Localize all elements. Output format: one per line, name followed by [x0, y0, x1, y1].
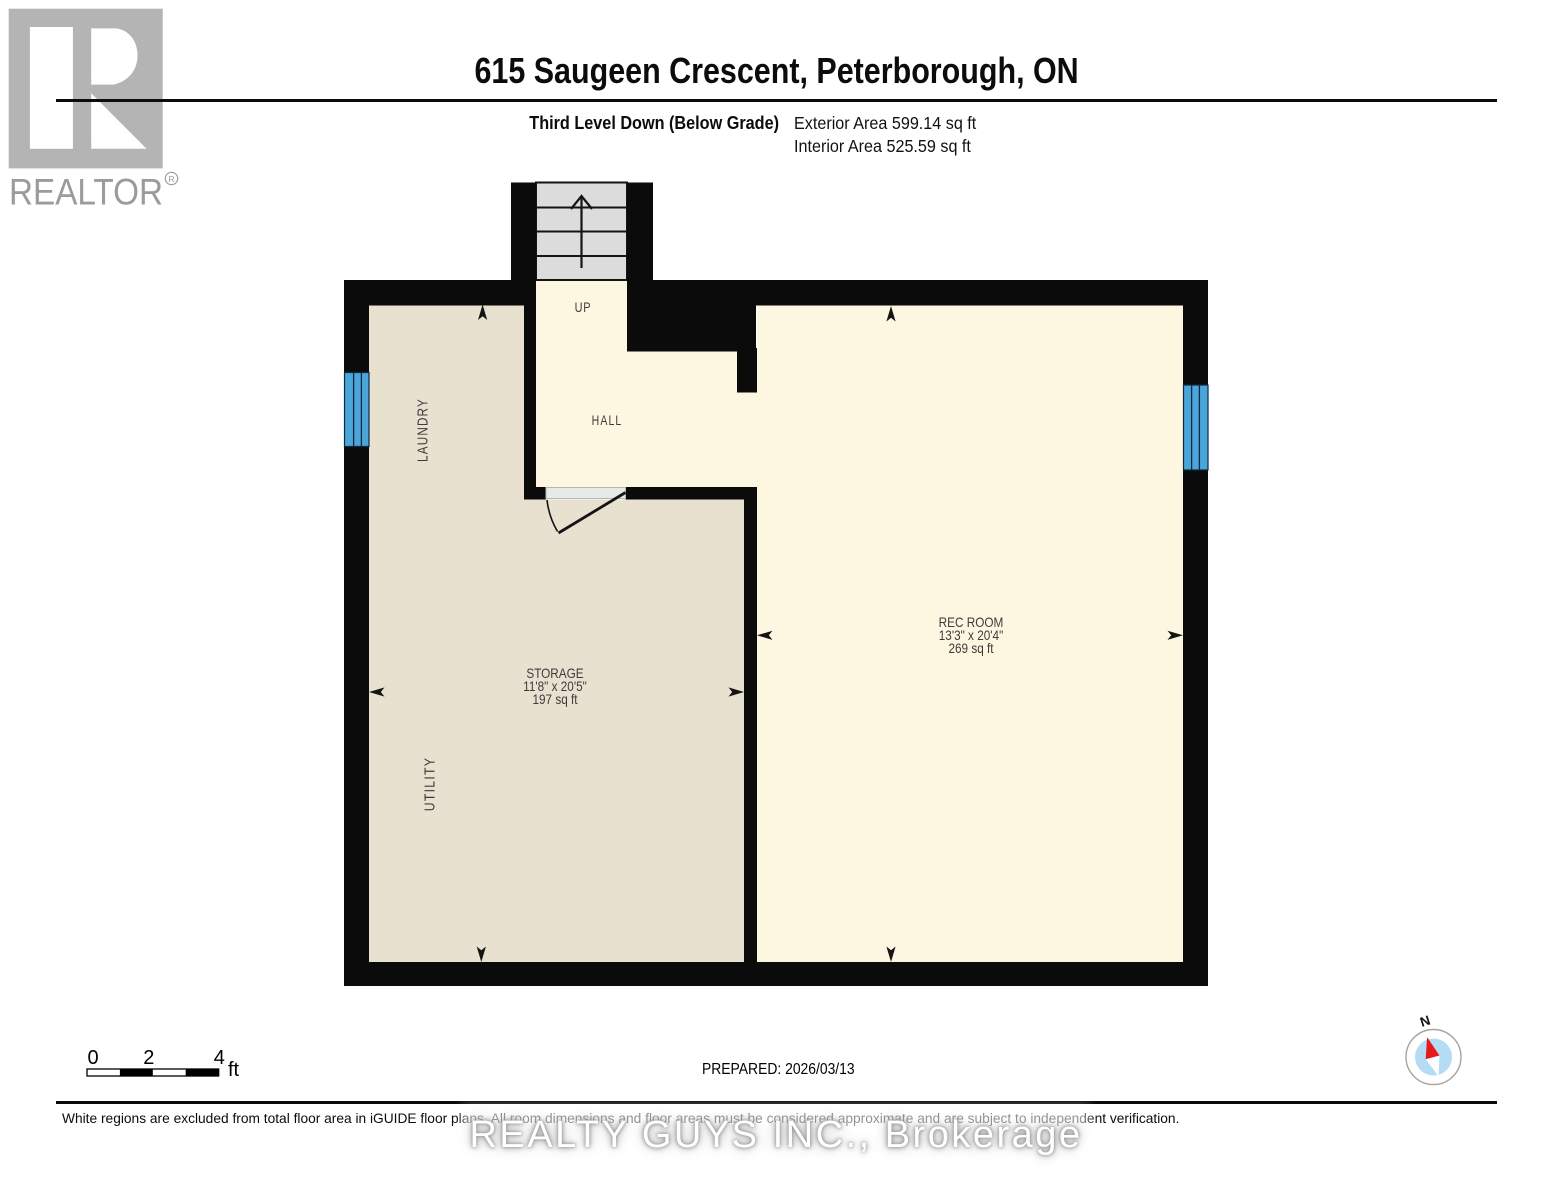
svg-text:N: N [1418, 1013, 1432, 1030]
